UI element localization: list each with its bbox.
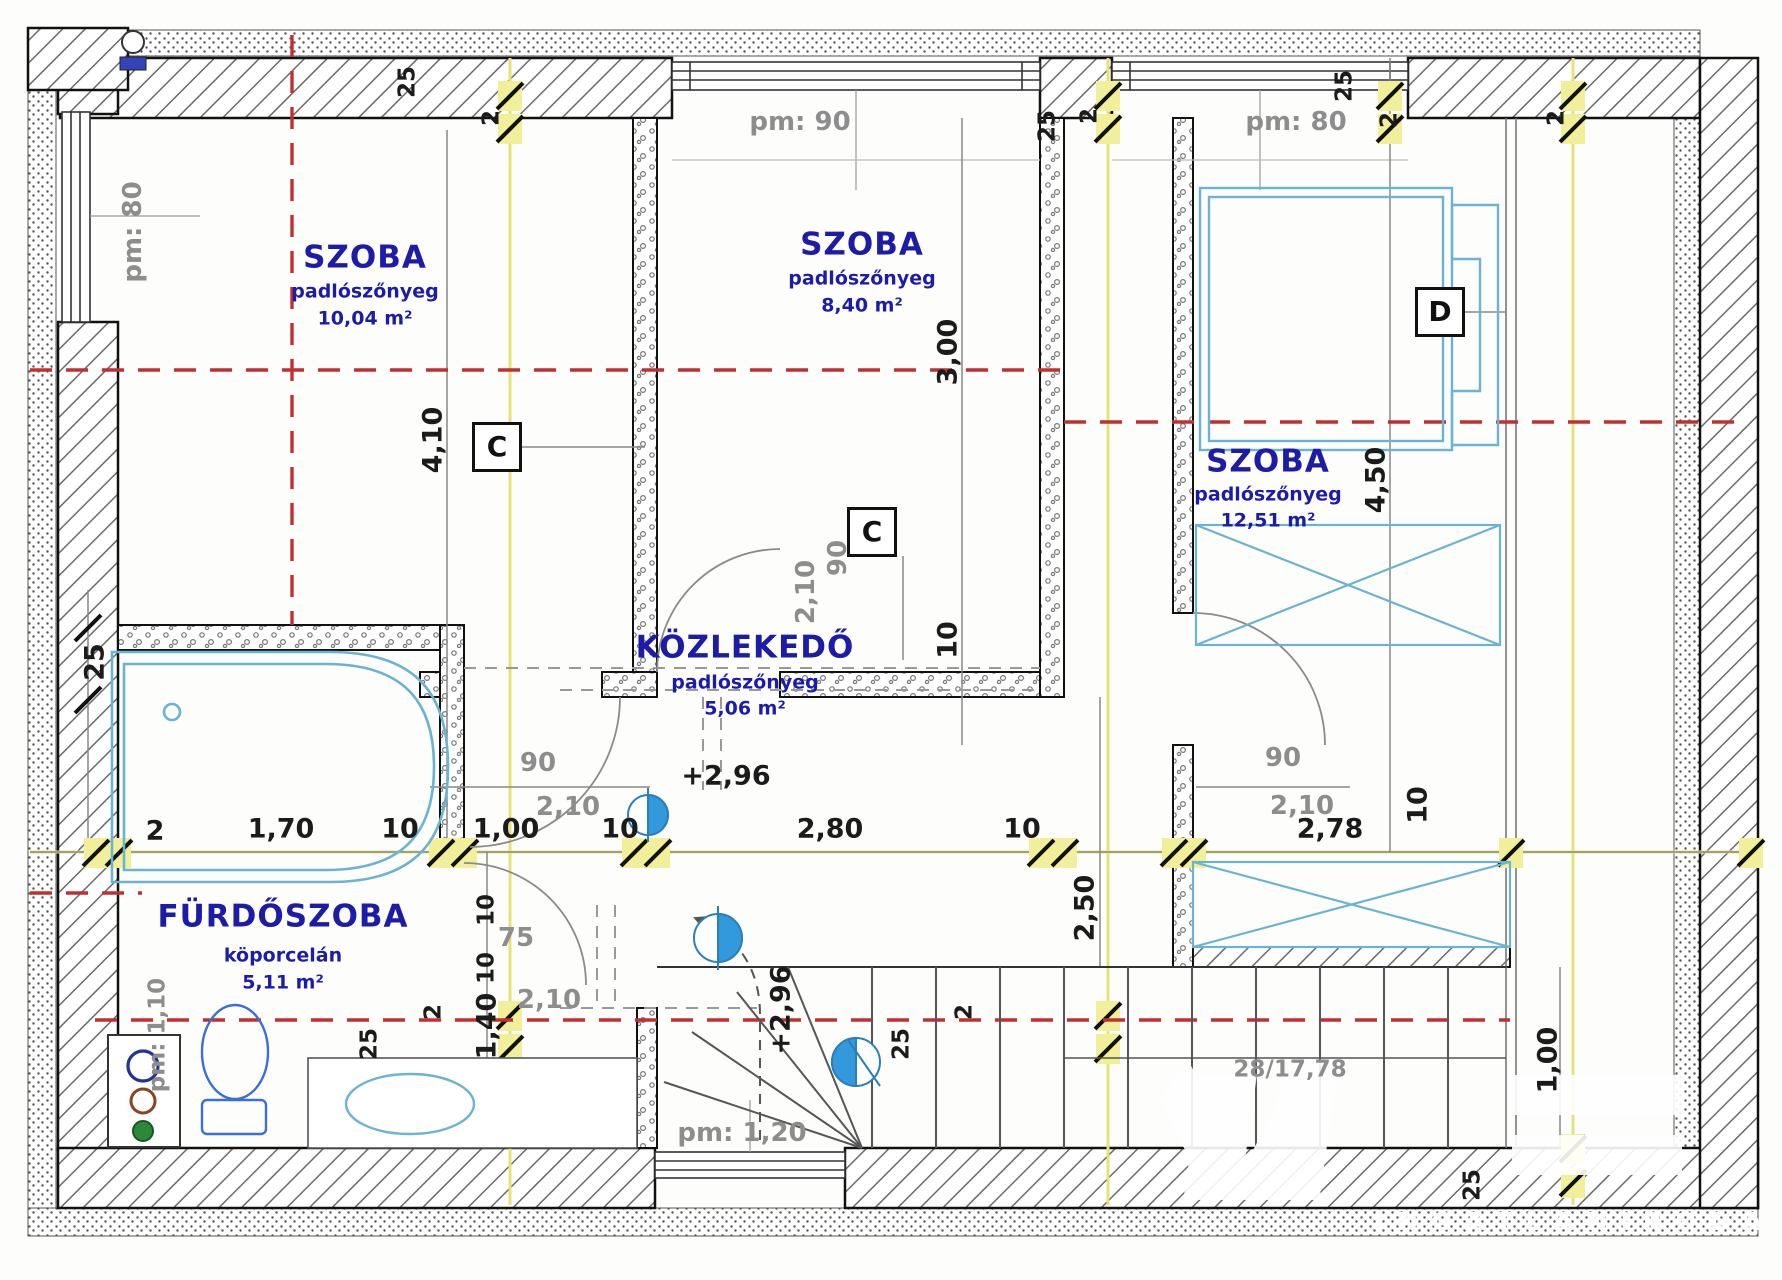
pipe-green xyxy=(133,1121,153,1141)
stair-side-wall xyxy=(1193,947,1510,967)
service-shaft xyxy=(108,1035,180,1147)
floorplan-drawing xyxy=(0,0,1782,1280)
floorplan-page: SZOBApadlószőnyeg10,04 m²SZOBApadlószőny… xyxy=(0,0,1782,1280)
washbasin-counter xyxy=(308,1058,637,1148)
level-marker-3 xyxy=(832,1038,880,1086)
